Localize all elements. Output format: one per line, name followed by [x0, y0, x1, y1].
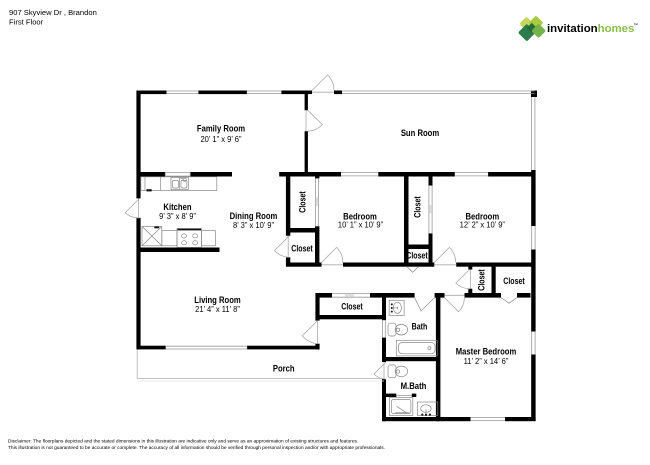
svg-text:907 Skyview Dr , Brandon: 907 Skyview Dr , Brandon	[9, 8, 97, 17]
svg-text:This illustration is not guara: This illustration is not guaranteed to b…	[8, 445, 385, 451]
svg-text:Master Bedroom: Master Bedroom	[456, 346, 517, 357]
svg-text:11’ 2” x 14’ 6”: 11’ 2” x 14’ 6”	[464, 357, 509, 367]
svg-text:Closet: Closet	[406, 251, 428, 261]
svg-text:Closet: Closet	[298, 191, 308, 213]
svg-text:First Floor: First Floor	[9, 17, 44, 26]
svg-text:Closet: Closet	[477, 269, 487, 291]
svg-text:M.Bath: M.Bath	[401, 381, 427, 391]
svg-text:Disclaimer: The floorplans dep: Disclaimer: The floorplans depicted and …	[8, 439, 358, 445]
svg-text:Closet: Closet	[503, 276, 525, 286]
svg-text:Sun Room: Sun Room	[401, 127, 440, 138]
svg-text:21’ 4” x 11’ 8”: 21’ 4” x 11’ 8”	[195, 305, 240, 315]
svg-text:Closet: Closet	[413, 196, 423, 218]
svg-text:9’ 3” x 8’ 9”: 9’ 3” x 8’ 9”	[159, 211, 196, 221]
svg-text:Porch: Porch	[273, 363, 295, 374]
svg-text:12’ 2” x 10’ 9”: 12’ 2” x 10’ 9”	[460, 220, 506, 230]
svg-text:Bath: Bath	[412, 322, 428, 332]
svg-text:Living Room: Living Room	[194, 294, 241, 305]
svg-text:8’ 3” x 10’ 9”: 8’ 3” x 10’ 9”	[233, 221, 274, 231]
svg-text:Closet: Closet	[291, 244, 313, 254]
svg-text:10’ 1” x 10’ 9”: 10’ 1” x 10’ 9”	[338, 220, 384, 230]
svg-text:invitationhomes: invitationhomes	[547, 23, 634, 35]
svg-text:20’ 1” x 9’ 6”: 20’ 1” x 9’ 6”	[200, 134, 241, 144]
svg-text:™: ™	[634, 23, 639, 28]
svg-text:Closet: Closet	[341, 302, 363, 312]
svg-text:Family Room: Family Room	[197, 123, 245, 134]
